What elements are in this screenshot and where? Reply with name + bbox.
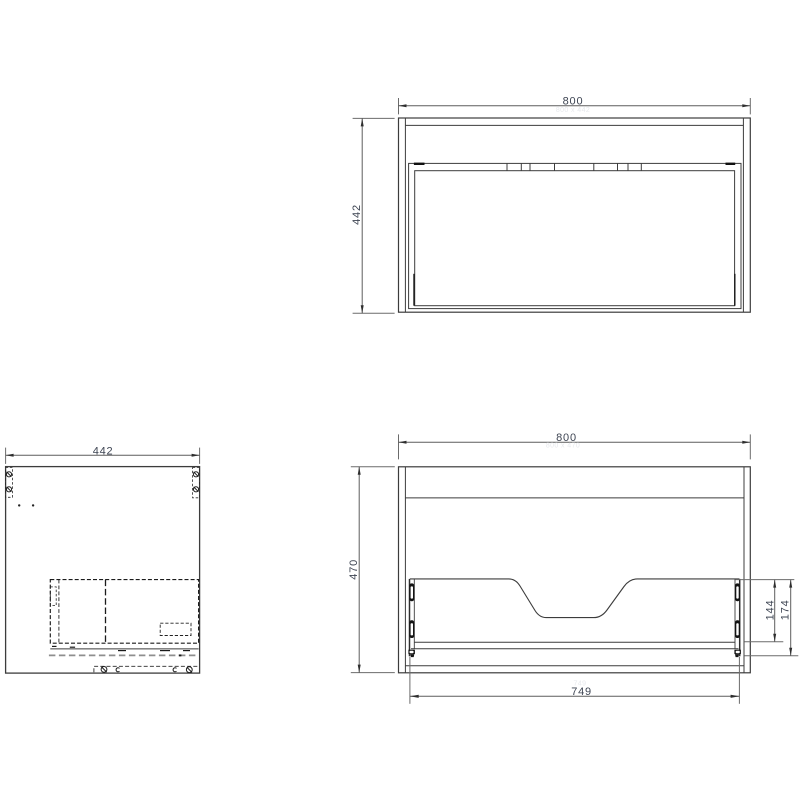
svg-text:442: 442 (93, 445, 114, 457)
svg-text:800 x 470: 800 x 470 (546, 442, 580, 449)
svg-text:470: 470 (348, 559, 360, 580)
svg-text:749: 749 (574, 681, 587, 688)
svg-text:800 x 442: 800 x 442 (556, 107, 590, 114)
svg-text:144: 144 (764, 600, 776, 621)
svg-text:174: 174 (780, 599, 792, 620)
svg-text:442: 442 (351, 204, 363, 225)
svg-text:800: 800 (563, 96, 584, 108)
svg-text:749: 749 (571, 686, 592, 698)
